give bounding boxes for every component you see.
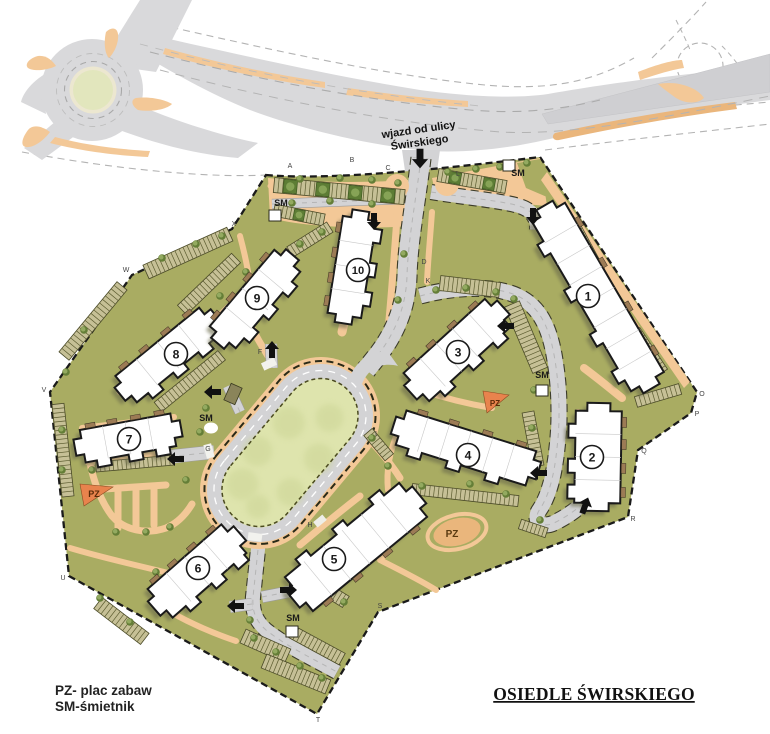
svg-text:A: A [288, 163, 293, 170]
svg-text:PZ: PZ [490, 399, 500, 408]
svg-text:SM: SM [535, 370, 549, 380]
svg-text:PZ: PZ [446, 529, 459, 540]
svg-text:1: 1 [585, 289, 592, 303]
svg-text:H: H [307, 522, 312, 529]
svg-text:4: 4 [465, 448, 472, 462]
svg-text:K: K [426, 278, 431, 285]
svg-text:2: 2 [589, 450, 596, 464]
svg-text:X: X [232, 221, 237, 228]
svg-text:PZ- plac zabaw: PZ- plac zabaw [55, 683, 152, 698]
svg-text:C: C [385, 165, 390, 172]
svg-text:10: 10 [352, 265, 364, 277]
svg-text:W: W [123, 267, 130, 274]
svg-text:7: 7 [126, 432, 133, 446]
svg-text:V: V [42, 387, 47, 394]
svg-text:6: 6 [195, 561, 202, 575]
svg-text:PZ: PZ [88, 489, 100, 499]
svg-text:R: R [630, 516, 635, 523]
svg-text:F: F [258, 349, 262, 356]
svg-text:9: 9 [254, 291, 261, 305]
svg-text:SM: SM [511, 168, 525, 178]
svg-text:Q: Q [641, 448, 647, 455]
svg-text:SM: SM [199, 413, 213, 423]
svg-text:B: B [350, 157, 355, 164]
svg-text:T: T [316, 717, 321, 724]
svg-text:L: L [456, 171, 460, 178]
svg-text:SM: SM [274, 198, 288, 208]
svg-text:SM-śmietnik: SM-śmietnik [55, 699, 135, 714]
svg-text:I: I [375, 431, 377, 438]
svg-text:SM: SM [286, 613, 300, 623]
svg-text:S: S [378, 603, 383, 610]
svg-text:OSIEDLE ŚWIRSKIEGO: OSIEDLE ŚWIRSKIEGO [493, 684, 695, 704]
svg-text:U: U [60, 575, 65, 582]
svg-text:P: P [695, 411, 700, 418]
svg-text:8: 8 [173, 347, 180, 361]
svg-text:5: 5 [331, 552, 338, 566]
svg-text:3: 3 [455, 345, 462, 359]
svg-text:G: G [205, 446, 210, 453]
svg-text:D: D [421, 259, 426, 266]
svg-text:O: O [699, 391, 705, 398]
